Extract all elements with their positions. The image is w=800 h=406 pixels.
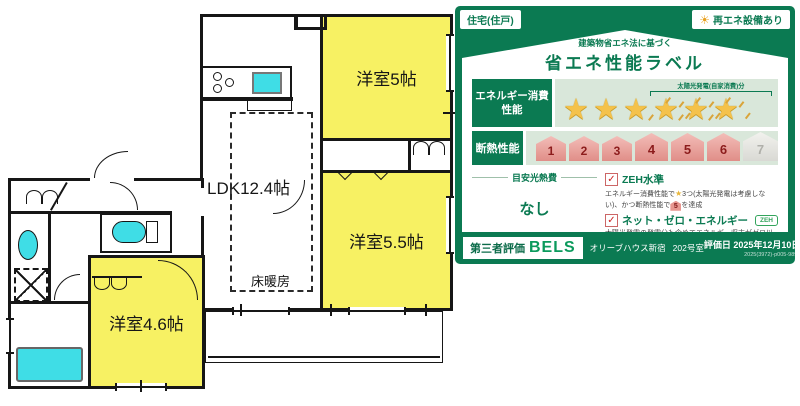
stove-icon — [225, 78, 234, 87]
insulation-level-6: 6 — [707, 133, 740, 161]
floor-heating-label: 床暖房 — [248, 271, 293, 290]
third-party-label: 第三者評価 — [470, 240, 525, 256]
divider-line — [561, 177, 597, 178]
energy-row-label: エネルギー消費性能 — [472, 79, 552, 127]
evaluation-info: 評価日 2025年12月10日 2025(3972)-p005-9894 — [704, 238, 800, 258]
bifold-door-icon — [26, 190, 42, 204]
room-label: 洋室5.5帖 — [323, 173, 450, 308]
energy-star-icon: ★ — [623, 96, 649, 125]
window-line — [449, 36, 451, 90]
zeh-desc-text: エネルギー消費性能で — [605, 191, 675, 198]
nze-title: ネット・ゼロ・エネルギー — [622, 213, 748, 228]
wall — [324, 14, 327, 30]
room-label: 洋室5帖 — [323, 17, 450, 138]
room-number: 202号室 — [673, 242, 704, 254]
renewable-badge: ☀ 再エネ設備あり — [692, 10, 790, 29]
label-subtitle: 建築物省エネ法に基づく — [462, 37, 788, 49]
divider-line — [472, 177, 508, 178]
wall — [294, 27, 327, 30]
energy-star-icon: ★ — [593, 96, 619, 125]
bels-box: 第三者評価 BELS — [463, 237, 583, 259]
energy-label-panel: 住宅(住戸) ☀ 再エネ設備あり 建築物省エネ法に基づく 省エネ性能ラベル エネ… — [455, 6, 795, 264]
dwelling-type-badge: 住宅(住戸) — [460, 10, 521, 29]
energy-star-solar-icon: ★ — [683, 96, 709, 125]
toilet-tank-icon — [146, 221, 158, 243]
zeh-title: ZEH水準 — [622, 172, 664, 187]
dwelling-type-label: 住宅(住戸) — [467, 12, 514, 27]
checkbox-checked-icon: ✓ — [605, 173, 618, 186]
balcony-line — [208, 356, 440, 358]
bifold-door-icon — [42, 190, 58, 204]
washer-space-icon — [14, 268, 48, 302]
label-title: 省エネ性能ラベル — [462, 49, 788, 74]
wall-tick — [425, 304, 427, 316]
renewable-label: 再エネ設備あり — [713, 12, 783, 27]
energy-performance-row: エネルギー消費性能 太陽光発電(自家消費)分 ★ ★ ★ ★ ★ ★ — [472, 79, 778, 127]
insulation-row: 断熱性能 1 2 3 4 5 6 7 — [472, 131, 778, 165]
wall-tick — [330, 304, 332, 316]
insulation-scale: 1 2 3 4 5 6 7 — [526, 131, 778, 165]
sun-icon: ☀ — [699, 13, 710, 27]
checkbox-checked-icon: ✓ — [605, 214, 618, 227]
room-yoshitsu-5: 洋室5帖 — [320, 14, 453, 141]
bels-footer: 第三者評価 BELS オリーブハウス新宿 202号室 評価日 2025年12月1… — [455, 232, 795, 264]
energy-star-solar-icon: ★ — [713, 96, 739, 125]
certificate-number: 2025(3972)-p005-9894 — [704, 252, 800, 258]
hall-ldk-opening — [199, 188, 205, 216]
label-house-body: 建築物省エネ法に基づく 省エネ性能ラベル エネルギー消費性能 太陽光発電(自家消… — [462, 30, 788, 232]
wall — [408, 140, 411, 171]
floor-heating-area — [230, 112, 313, 292]
insulation-row-label: 断熱性能 — [472, 131, 523, 165]
stove-icon — [213, 72, 222, 81]
room-yoshitsu-5-5: 洋室5.5帖 — [320, 170, 453, 311]
insulation-level-1: 1 — [536, 136, 566, 161]
insulation-level-5: 5 — [671, 133, 704, 161]
star-rating: ★ ★ ★ ★ ★ ★ — [563, 96, 739, 125]
bifold-door-icon — [111, 277, 127, 290]
window-line — [234, 310, 288, 312]
property-name: オリーブハウス新宿 — [590, 242, 666, 254]
bifold-door-icon — [94, 277, 110, 290]
kitchen-step — [247, 101, 292, 111]
insulation-level-7: 7 — [743, 132, 778, 161]
toilet-icon — [112, 221, 146, 243]
utility-cost-label: 目安光熱費 — [512, 171, 557, 184]
sink-icon — [252, 72, 282, 94]
window-line — [449, 198, 451, 252]
insulation-level-3: 3 — [602, 136, 632, 161]
toilet-icon — [18, 230, 38, 260]
bels-logo: BELS — [529, 239, 576, 257]
entrance-door-arc — [94, 151, 128, 178]
energy-stars-area: 太陽光発電(自家消費)分 ★ ★ ★ ★ ★ ★ — [555, 79, 778, 127]
wall-tick — [140, 380, 142, 392]
wall-tick — [240, 304, 242, 316]
mini-house-icon: 5 — [670, 201, 681, 211]
insulation-level-4: 4 — [635, 133, 668, 161]
insulation-level-2: 2 — [569, 136, 599, 161]
evaluation-date: 評価日 2025年12月10日 — [704, 238, 800, 251]
bifold-door-icon — [429, 141, 445, 155]
window-line — [350, 310, 404, 312]
window-line — [9, 320, 11, 352]
zeh-description: エネルギー消費性能で★3つ(太陽光発電は考慮しない)、かつ断熱性能で5を達成 — [605, 188, 778, 211]
bifold-door-icon — [413, 141, 429, 155]
solar-bracket-label: 太陽光発電(自家消費)分 — [650, 81, 772, 90]
stove-icon — [213, 84, 222, 93]
wall — [48, 213, 51, 303]
energy-star-solar-icon: ★ — [653, 96, 679, 125]
energy-star-icon: ★ — [563, 96, 589, 125]
utility-cost-value: なし — [472, 198, 597, 219]
bathtub-icon — [16, 347, 83, 382]
zeh-desc-text: を達成 — [681, 202, 702, 209]
zeh-badge-icon: ZEH — [755, 215, 778, 226]
